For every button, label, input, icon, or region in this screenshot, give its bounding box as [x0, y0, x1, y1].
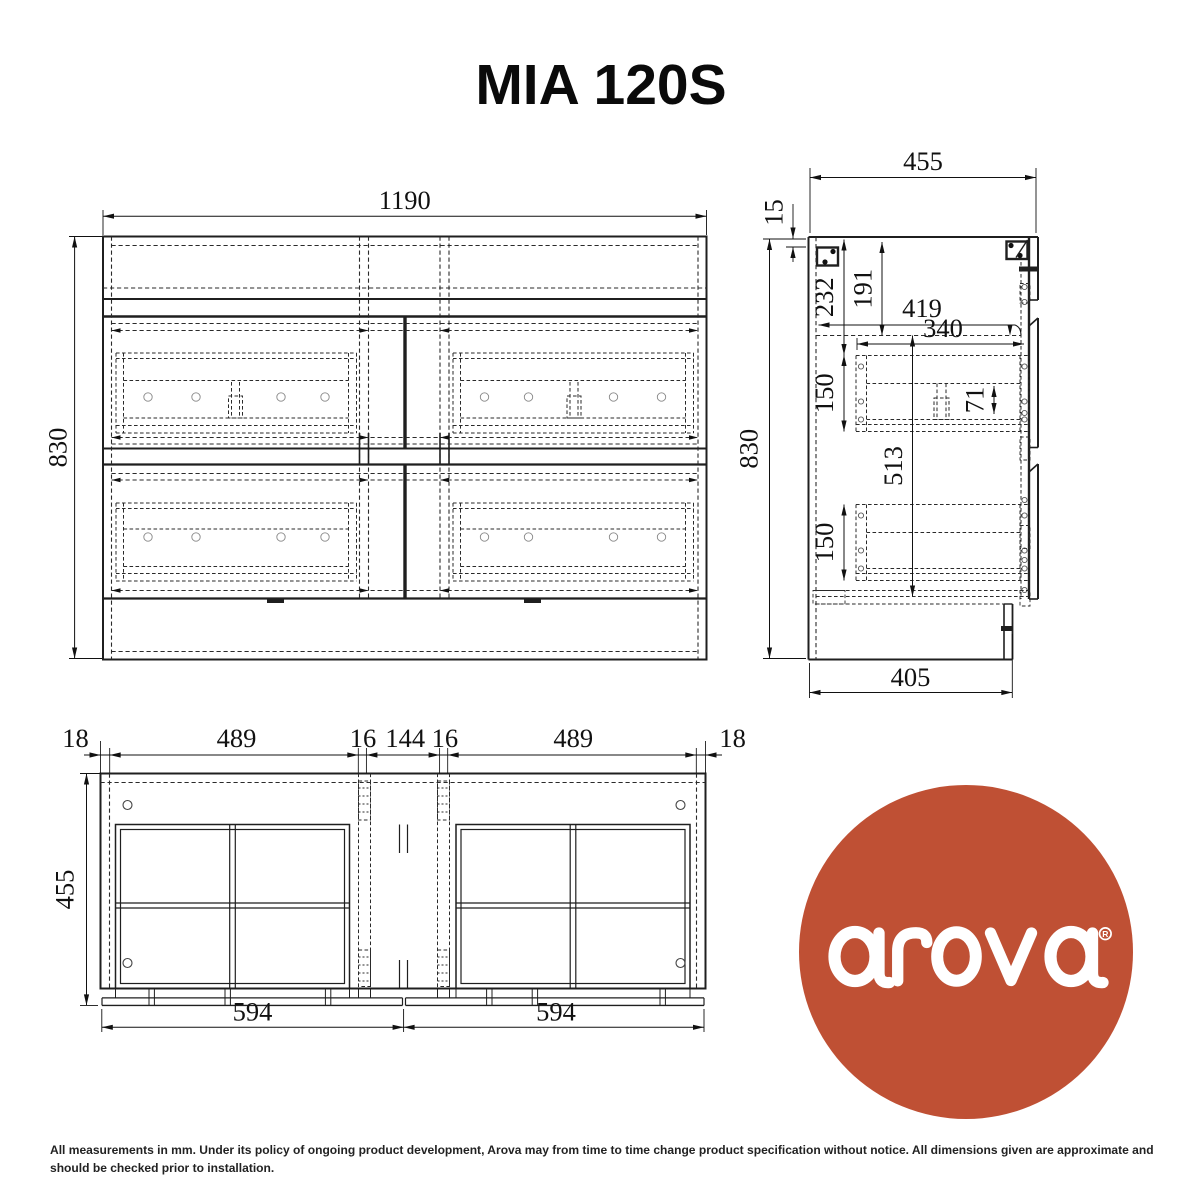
svg-text:150: 150 — [809, 523, 839, 563]
svg-text:18: 18 — [62, 723, 89, 753]
svg-text:405: 405 — [891, 662, 931, 692]
svg-text:15: 15 — [759, 199, 789, 226]
svg-text:MIA 120S: MIA 120S — [475, 53, 726, 117]
svg-text:150: 150 — [809, 373, 839, 413]
svg-text:455: 455 — [903, 146, 943, 176]
svg-text:232: 232 — [809, 277, 839, 317]
svg-text:830: 830 — [734, 429, 764, 469]
svg-text:should be checked prior to ins: should be checked prior to installation. — [50, 1161, 274, 1175]
svg-text:16: 16 — [350, 723, 377, 753]
svg-text:191: 191 — [848, 269, 878, 309]
svg-text:R: R — [1102, 929, 1108, 939]
svg-text:18: 18 — [719, 723, 746, 753]
svg-text:71: 71 — [960, 387, 990, 414]
svg-text:340: 340 — [923, 313, 963, 343]
svg-text:1190: 1190 — [379, 185, 431, 215]
svg-text:513: 513 — [878, 446, 908, 486]
svg-text:594: 594 — [233, 997, 273, 1027]
svg-text:489: 489 — [217, 723, 257, 753]
svg-text:144: 144 — [385, 723, 425, 753]
svg-text:489: 489 — [553, 723, 593, 753]
svg-text:16: 16 — [432, 723, 459, 753]
svg-text:All measurements in mm. Under: All measurements in mm. Under its policy… — [50, 1143, 1154, 1157]
svg-text:455: 455 — [50, 870, 80, 910]
svg-text:830: 830 — [43, 428, 73, 468]
svg-text:594: 594 — [536, 997, 576, 1027]
